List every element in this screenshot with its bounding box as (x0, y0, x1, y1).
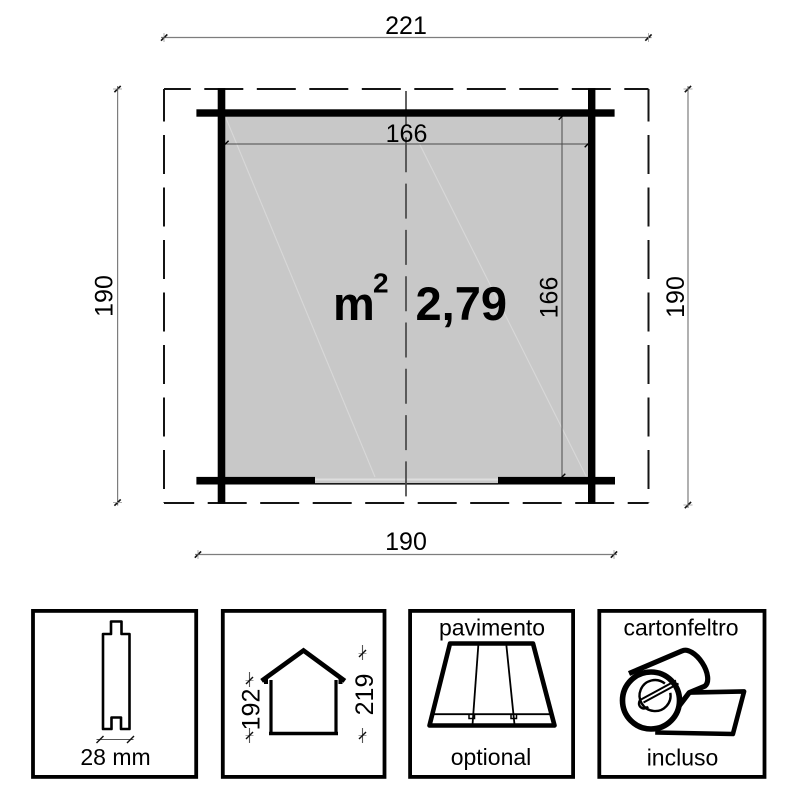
svg-text:28 mm: 28 mm (80, 744, 150, 770)
svg-text:cartonfeltro: cartonfeltro (623, 615, 738, 641)
svg-text:221: 221 (385, 12, 427, 40)
svg-text:166: 166 (536, 277, 564, 319)
svg-text:m: m (333, 277, 375, 330)
svg-text:incluso: incluso (647, 745, 719, 771)
svg-text:192: 192 (238, 689, 266, 731)
svg-text:2: 2 (373, 268, 389, 299)
svg-text:2,79: 2,79 (416, 277, 507, 330)
svg-text:166: 166 (386, 120, 428, 148)
svg-text:219: 219 (351, 674, 379, 716)
svg-text:optional: optional (451, 744, 532, 770)
svg-text:190: 190 (91, 275, 119, 317)
svg-text:pavimento: pavimento (439, 615, 545, 641)
svg-text:190: 190 (385, 528, 427, 556)
svg-text:190: 190 (662, 276, 690, 318)
